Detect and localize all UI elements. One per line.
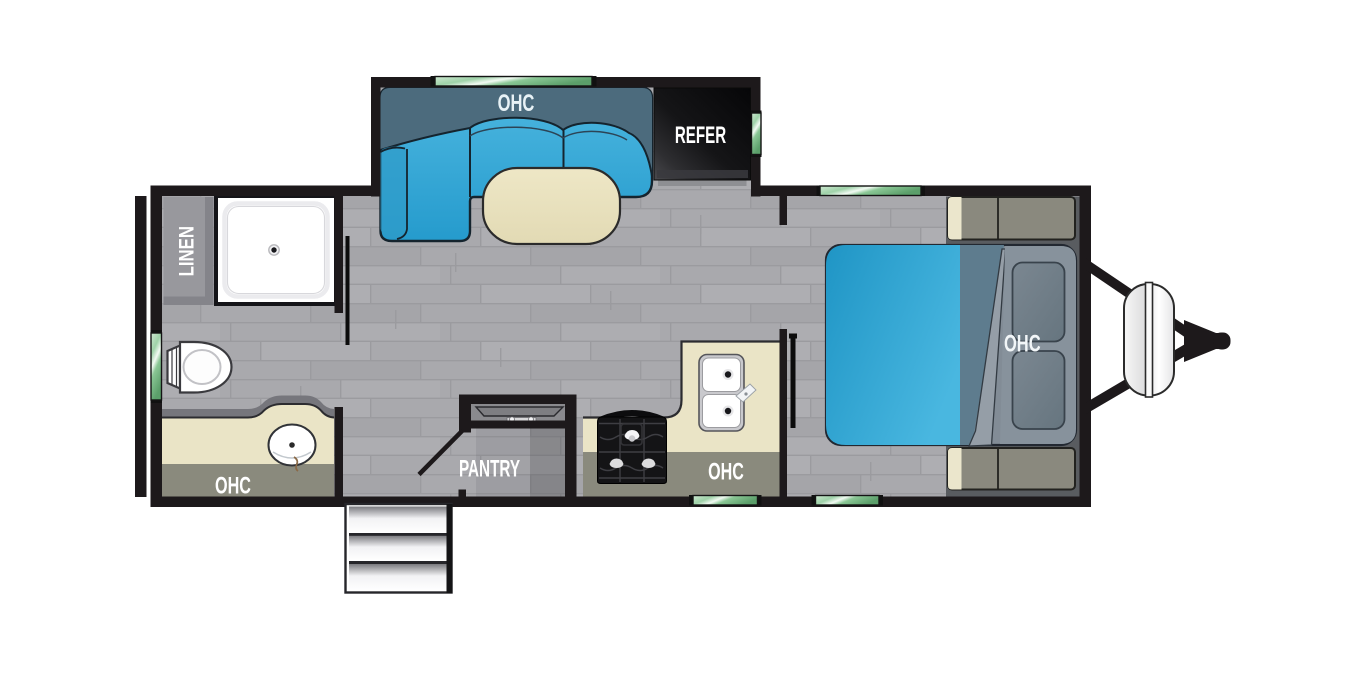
- svg-text:REFER: REFER: [675, 123, 727, 149]
- svg-text:OHC: OHC: [215, 472, 251, 499]
- svg-text:OHC: OHC: [498, 90, 535, 117]
- svg-text:OHC: OHC: [708, 460, 744, 486]
- svg-text:LINEN: LINEN: [176, 226, 199, 276]
- svg-text:OHC: OHC: [1004, 331, 1041, 358]
- svg-text:PANTRY: PANTRY: [459, 456, 521, 482]
